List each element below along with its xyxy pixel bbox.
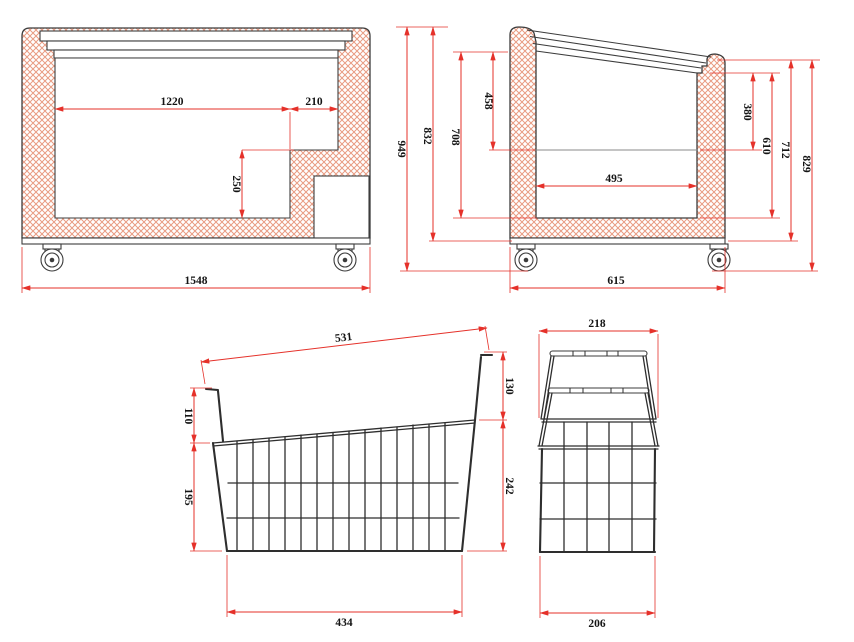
side-sloped-lid-lines — [527, 30, 711, 73]
dimension-basket-left-hook: 110 — [182, 388, 212, 443]
dim-label-250: 250 — [230, 175, 242, 193]
caster-wheel — [708, 244, 730, 271]
dim-label-610: 610 — [760, 137, 772, 155]
dim-label-1220: 1220 — [161, 96, 184, 108]
front-lid-step-3 — [54, 50, 338, 58]
dim-label-832: 832 — [421, 127, 433, 145]
dim-label-218: 218 — [588, 318, 606, 330]
dim-label-210: 210 — [305, 96, 323, 108]
dim-label-242: 242 — [503, 477, 515, 495]
basket-hook-rail-near — [548, 388, 649, 393]
basket-side-view: 531 110 195 130 242 434 — [182, 326, 515, 629]
dim-label-434: 434 — [335, 617, 353, 629]
caster-wheel — [515, 244, 537, 271]
basket-hook-rail-far — [550, 351, 647, 356]
dim-label-380: 380 — [741, 103, 753, 121]
dim-label-130: 130 — [503, 377, 515, 395]
dimension-basket-right-hook: 130 — [479, 352, 515, 420]
dimension-front-overall-width: 1548 — [22, 247, 370, 293]
dim-label-949: 949 — [395, 140, 407, 158]
dimension-basket-right-body: 242 — [467, 420, 515, 551]
dim-label-195: 195 — [182, 488, 194, 506]
caster-wheel — [41, 244, 63, 271]
front-lid-step-2 — [47, 41, 345, 50]
basket-end-view: 218 206 — [538, 318, 659, 630]
basket-side-wires — [206, 355, 492, 551]
dim-label-708: 708 — [449, 128, 461, 146]
freezer-technical-drawing: 1220 210 250 1548 949 — [0, 0, 854, 642]
dim-label-1548: 1548 — [185, 275, 208, 287]
caster-wheel — [334, 244, 356, 271]
dimension-basket-bottom-length: 434 — [227, 555, 462, 629]
side-base-plate — [510, 238, 725, 244]
dimension-side-body-height: 832 — [421, 27, 512, 241]
technical-drawing-canvas: 1220 210 250 1548 949 — [0, 0, 854, 642]
dimension-side-base-width: 615 — [510, 247, 725, 293]
dim-label-531: 531 — [334, 331, 353, 345]
dim-label-829: 829 — [800, 155, 812, 173]
dim-label-712: 712 — [779, 141, 791, 159]
dimension-side-right-overall-height: 829 — [712, 60, 818, 271]
dim-label-458: 458 — [482, 92, 494, 110]
side-section-view: 949 832 708 458 495 380 — [395, 27, 820, 293]
dim-label-110: 110 — [182, 408, 194, 425]
dimension-basket-end-top-width: 218 — [539, 318, 658, 418]
dim-label-615: 615 — [607, 275, 625, 287]
dim-label-206: 206 — [588, 618, 606, 630]
dim-label-495: 495 — [605, 173, 623, 185]
front-lid-step-1 — [40, 31, 352, 41]
front-compressor-compartment — [314, 176, 369, 238]
front-base-plate — [22, 238, 370, 244]
front-section-view: 1220 210 250 1548 — [22, 28, 370, 293]
basket-end-wires — [538, 351, 659, 552]
side-insulated-body — [510, 27, 725, 238]
dimension-side-inner-length: 495 — [536, 173, 697, 186]
dimension-basket-end-bottom-width: 206 — [540, 556, 655, 630]
dimension-basket-top-length: 531 — [201, 326, 489, 384]
